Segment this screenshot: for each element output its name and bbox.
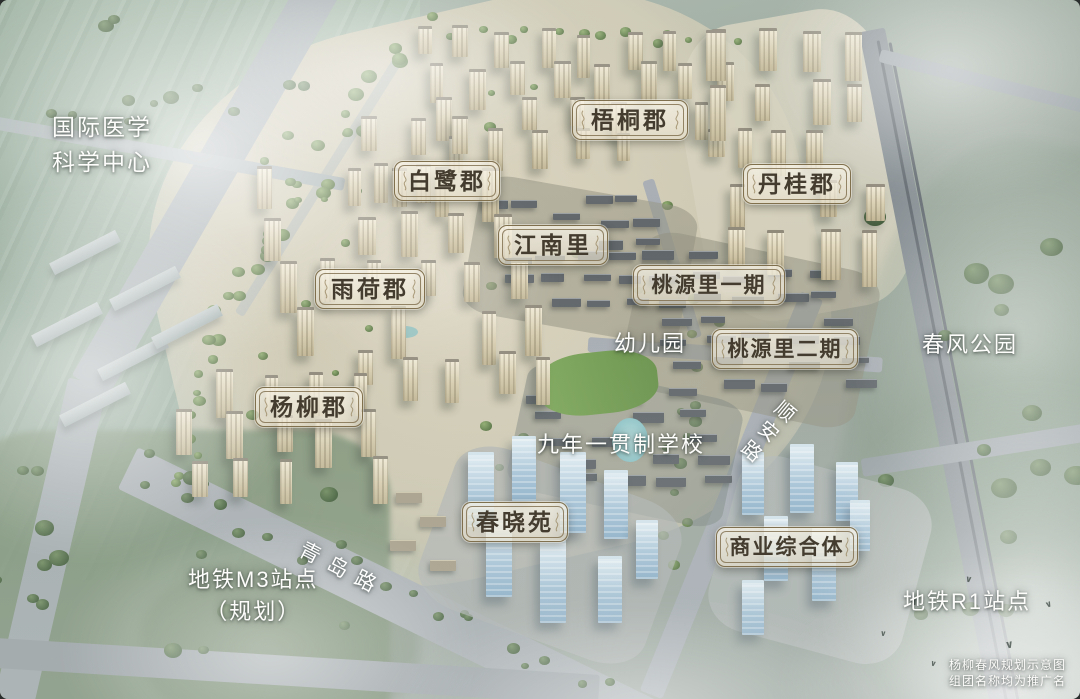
badge-label: 雨荷郡	[331, 278, 409, 301]
labels-layer: 梧桐郡白鹭郡丹桂郡江南里雨荷郡桃源里一期桃源里二期杨柳郡春晓苑商业综合体国际医学…	[0, 0, 1080, 699]
badge-chunxiaoyuan: 春晓苑	[462, 502, 568, 542]
badge-taoyuanli-phase1: 桃源里一期	[633, 265, 785, 305]
label-metro-m3: 地铁M3站点 （规划）	[188, 564, 319, 628]
badge-yangliujun: 杨柳郡	[255, 387, 363, 427]
badge-wutongjun: 梧桐郡	[572, 100, 688, 140]
ornament-icon	[769, 273, 779, 297]
ornament-icon	[592, 233, 602, 257]
label-medical-center: 国际医学 科学中心	[52, 110, 152, 180]
badge-label: 白鹭郡	[408, 170, 486, 193]
ornament-icon	[842, 337, 852, 361]
label-shunan-road: 顺安路	[729, 393, 801, 471]
ornament-icon	[552, 510, 562, 534]
badge-yuhejun: 雨荷郡	[315, 269, 425, 309]
badge-label: 桃源里二期	[728, 339, 843, 360]
ornament-icon	[835, 172, 845, 196]
masterplan-rendering: ∨∨∨∨∨∨ 梧桐郡白鹭郡丹桂郡江南里雨荷郡桃源里一期桃源里二期杨柳郡春晓苑商业…	[0, 0, 1080, 699]
ornament-icon	[321, 277, 331, 301]
badge-taoyuanli-phase2: 桃源里二期	[712, 329, 858, 369]
ornament-icon	[409, 277, 419, 301]
ornament-icon	[672, 108, 682, 132]
badge-label: 桃源里一期	[652, 275, 767, 296]
ornament-icon	[347, 395, 357, 419]
ornament-icon	[842, 535, 852, 559]
badge-label: 商业综合体	[730, 537, 845, 558]
label-kindergarten: 幼儿园	[614, 326, 686, 358]
label-metro-r1: 地铁R1站点	[903, 584, 1031, 616]
badge-bailujun: 白鹭郡	[394, 161, 500, 201]
badge-danguijun: 丹桂郡	[743, 164, 851, 204]
ornament-icon	[718, 337, 728, 361]
ornament-icon	[578, 108, 588, 132]
badge-jiangnanli: 江南里	[498, 225, 608, 265]
badge-label: 梧桐郡	[591, 109, 669, 132]
badge-label: 江南里	[514, 234, 592, 257]
badge-label: 春晓苑	[476, 511, 554, 534]
label-school: 九年一贯制学校	[537, 427, 705, 459]
label-plan-note: 杨柳春风规划示意图 组团名称均为推广名	[949, 657, 1066, 689]
ornament-icon	[504, 233, 514, 257]
ornament-icon	[639, 273, 649, 297]
badge-label: 杨柳郡	[270, 396, 348, 419]
badge-commercial-complex: 商业综合体	[716, 527, 858, 567]
label-chunfeng-park: 春风公园	[922, 327, 1018, 359]
badge-label: 丹桂郡	[758, 173, 836, 196]
ornament-icon	[484, 169, 494, 193]
